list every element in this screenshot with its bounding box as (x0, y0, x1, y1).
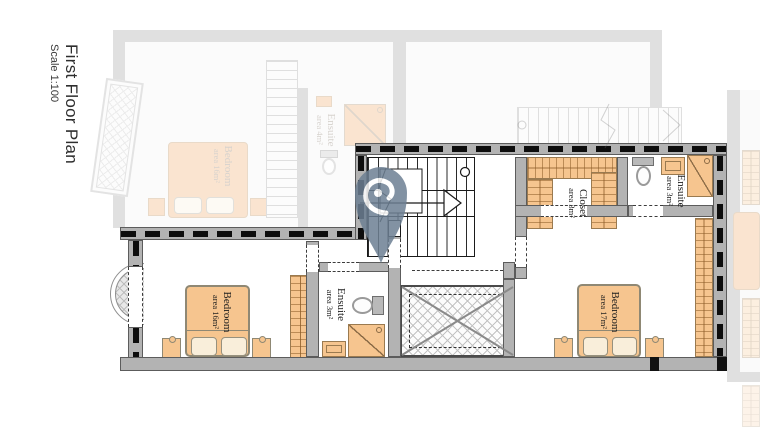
room-label-ensuite-middle: Ensuite area 3m² (326, 278, 346, 331)
ghost-bed-neighbour (733, 212, 760, 290)
stair-newel (388, 220, 401, 237)
room-label-closet: Closet area 3m² (568, 178, 588, 228)
stair-landing-line (367, 190, 475, 191)
ghost-wardrobe (742, 385, 760, 427)
shower (687, 155, 713, 197)
wall-exterior-top-left (120, 227, 367, 240)
ghost-wardrobe (742, 298, 760, 358)
ghost-wall (298, 88, 308, 228)
pillow (191, 337, 217, 356)
ghost-stairs-upper (517, 107, 682, 144)
toilet-tank (372, 296, 384, 315)
wall-stub (515, 267, 527, 279)
floor-plan: Bedroom area 16m² Ensuite area 4m² First… (0, 0, 760, 436)
toilet-bowl (352, 297, 373, 314)
nightstand (554, 338, 573, 358)
void-hatched-area (400, 285, 515, 357)
toilet-bowl (636, 166, 651, 186)
ghost-shower (344, 104, 386, 146)
closet-rail-left (527, 179, 553, 229)
ghost-pillow (174, 197, 202, 214)
staircase (367, 157, 475, 257)
room-label-bedroom-right: Bedroom area 17m² (600, 286, 620, 338)
door-opening-hall (388, 239, 401, 268)
wardrobe-tall (695, 218, 713, 357)
wall-stub (503, 262, 515, 279)
page-title: First Floor Plan (62, 44, 80, 194)
wall-exterior-top-right (355, 143, 727, 155)
ghost-nightstand (250, 198, 267, 216)
nightstand (645, 338, 664, 358)
wall-pier (717, 357, 727, 371)
wall-interior (515, 157, 527, 237)
wall-exterior-left (128, 240, 143, 267)
ghost-toilet-bowl (322, 158, 336, 175)
wall-exterior-bottom (120, 357, 727, 371)
door-opening-bedroom-right (515, 237, 527, 267)
door-opening-ensuite-right (633, 205, 663, 217)
room-label-bedroom-left: Bedroom area 16m² (212, 286, 232, 338)
toilet-tank (632, 157, 654, 166)
ghost-wardrobe (742, 150, 760, 205)
closet-rail-right (591, 172, 617, 229)
void-dashed-edge (412, 270, 503, 271)
door-opening-ensuite-middle (328, 262, 359, 272)
ghost-wall (727, 372, 760, 382)
nightstand (252, 338, 271, 358)
plan-title-block: First Floor Plan Scale 1:100 (48, 44, 80, 194)
bay-window-opening (128, 267, 143, 327)
ghost-nightstand (148, 198, 165, 216)
plan-scale: Scale 1:100 (48, 44, 60, 194)
shower (348, 324, 385, 357)
pillow (612, 337, 637, 356)
nightstand (162, 338, 181, 358)
pillow (221, 337, 247, 356)
wall-stair-left (355, 155, 367, 240)
wall-pier (650, 357, 659, 371)
door-opening-bedroom-left (306, 245, 319, 272)
ghost-pillow (206, 197, 234, 214)
ghost-wall (113, 30, 662, 42)
ghost-room-label-ensuite: Ensuite area 4m² (316, 106, 336, 154)
ghost-sink (316, 96, 332, 107)
ghost-stairs (266, 60, 298, 218)
wall-exterior-right (713, 155, 727, 357)
pillow (583, 337, 608, 356)
room-label-ensuite-right: Ensuite area 3m² (666, 168, 686, 214)
wall-interior (503, 279, 515, 357)
ghost-toilet-tank (320, 150, 338, 158)
ghost-room-label-bedroom: Bedroom area 16m² (213, 138, 233, 194)
stair-landing-line (367, 216, 475, 217)
void-dashed-outline (409, 294, 506, 348)
sink (322, 341, 346, 357)
